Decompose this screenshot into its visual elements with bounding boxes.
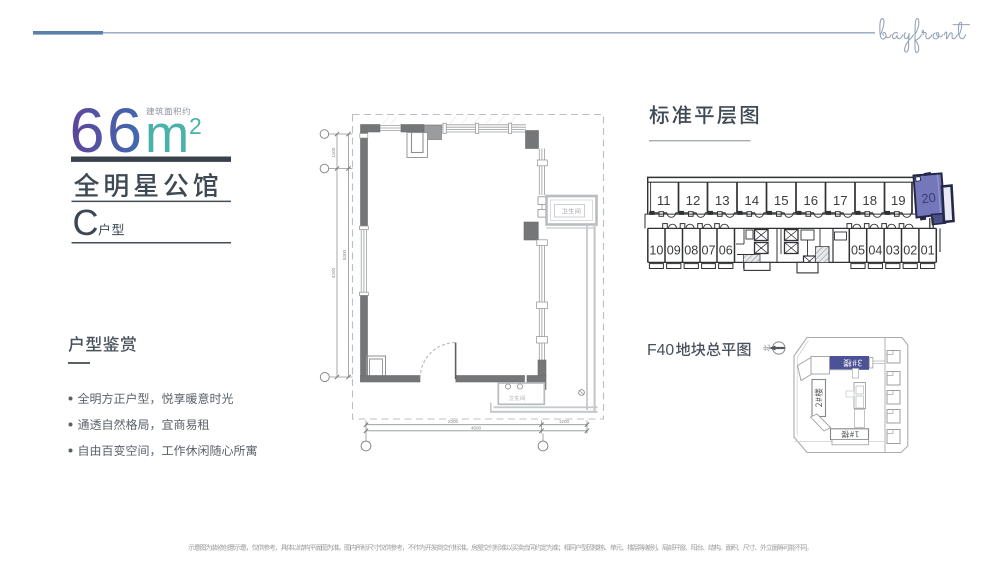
svg-text:1200: 1200 [559, 419, 570, 424]
svg-text:10: 10 [649, 244, 663, 258]
svg-text:12: 12 [686, 193, 701, 208]
svg-text:C: C [73, 202, 99, 243]
svg-text:14: 14 [744, 193, 759, 208]
svg-text:13: 13 [715, 193, 730, 208]
svg-text:4200: 4200 [331, 267, 336, 278]
svg-text:08: 08 [684, 244, 698, 258]
svg-text:17: 17 [833, 193, 848, 208]
svg-text:2: 2 [189, 113, 202, 139]
svg-text:06: 06 [719, 244, 733, 258]
svg-text:04: 04 [868, 244, 882, 258]
svg-text:19: 19 [891, 193, 906, 208]
svg-text:18: 18 [862, 193, 877, 208]
svg-text:05: 05 [851, 244, 865, 258]
svg-text:20: 20 [921, 190, 937, 207]
svg-text:11: 11 [657, 193, 671, 208]
svg-text:03: 03 [886, 244, 900, 258]
svg-text:09: 09 [667, 244, 681, 258]
svg-text:15: 15 [774, 193, 789, 208]
svg-text:02: 02 [903, 244, 917, 258]
svg-text:5300: 5300 [342, 249, 347, 260]
svg-text:66: 66 [70, 96, 145, 166]
svg-text:16: 16 [803, 193, 818, 208]
svg-text:1100: 1100 [331, 147, 336, 157]
svg-text:07: 07 [701, 244, 715, 258]
svg-text:2300: 2300 [448, 419, 459, 424]
svg-text:4600: 4600 [471, 425, 482, 430]
svg-text:01: 01 [921, 244, 935, 258]
svg-text:F40: F40 [647, 342, 674, 359]
